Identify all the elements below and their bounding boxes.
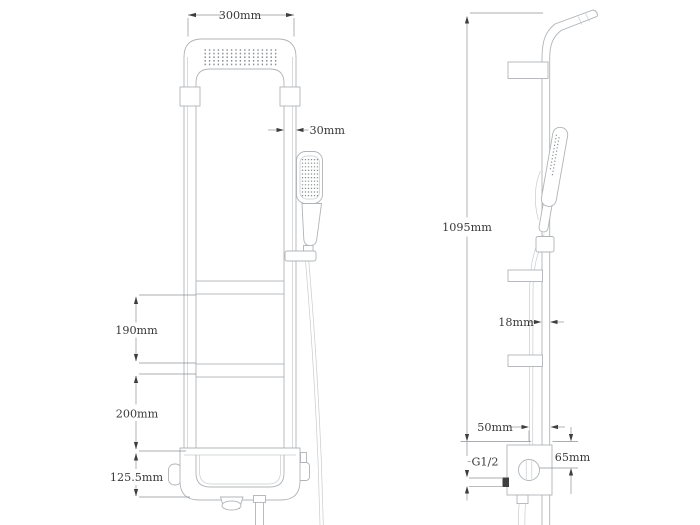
hose-connector [304,246,314,252]
shelf-lower-side [508,355,543,367]
rain-shower-head [205,50,280,64]
outlet-fitting [254,496,266,503]
technical-drawing-canvas: 300mm 30mm 190mm 200mm 125.5mm [0,0,700,525]
shelf-upper-side [508,270,543,282]
dim-label-valve-offset: 50mm [477,421,513,434]
dim-label-rail-depth: 18mm [498,316,534,329]
slider-block-side [536,237,554,253]
knob-right-stem [301,453,307,464]
wall-bracket-left [180,87,200,106]
water-inlet [503,478,510,488]
wall-bracket-right [280,87,300,106]
panel-outer-frame [184,39,296,449]
dim-label-inlet-thread: G1/2 [472,456,499,469]
dim-label-rail-width: 30mm [310,124,346,137]
dimension-panel-width: 300mm [188,9,294,37]
shower-arm [542,10,597,58]
side-view [503,10,598,525]
hand-shower-handle [302,204,322,246]
dim-label-valve-drop: 65mm [555,451,591,464]
dim-label-tank-height: 125.5mm [110,471,164,484]
valve-box [503,445,553,525]
slider-bracket-front [285,251,316,261]
spout-tip [222,501,241,510]
top-bracket-side [508,62,548,79]
dimension-rail-depth: 18mm [498,316,564,329]
shelf-upper [196,281,284,294]
shelf-lower [196,364,284,377]
hand-shower-front [285,152,323,262]
dimension-total-height: 1095mm [442,13,543,456]
dimension-rail-width: 30mm [268,124,345,137]
bottom-tank [169,448,310,525]
hose-outlet-fitting [517,495,528,504]
hand-shower-side [536,126,569,233]
dimension-valve-offset: 50mm [477,421,565,441]
dim-label-total-height: 1095mm [442,221,492,234]
dim-label-lower-spacing: 200mm [116,408,159,421]
shower-panel-drawing: 300mm 30mm 190mm 200mm 125.5mm [0,0,700,525]
dim-label-panel-width: 300mm [219,9,262,22]
dim-label-shelf-spacing: 190mm [115,324,158,337]
shower-hose-front [306,261,324,525]
tank-body [180,448,300,500]
front-view [169,39,324,525]
panel-faceplate [196,69,284,450]
